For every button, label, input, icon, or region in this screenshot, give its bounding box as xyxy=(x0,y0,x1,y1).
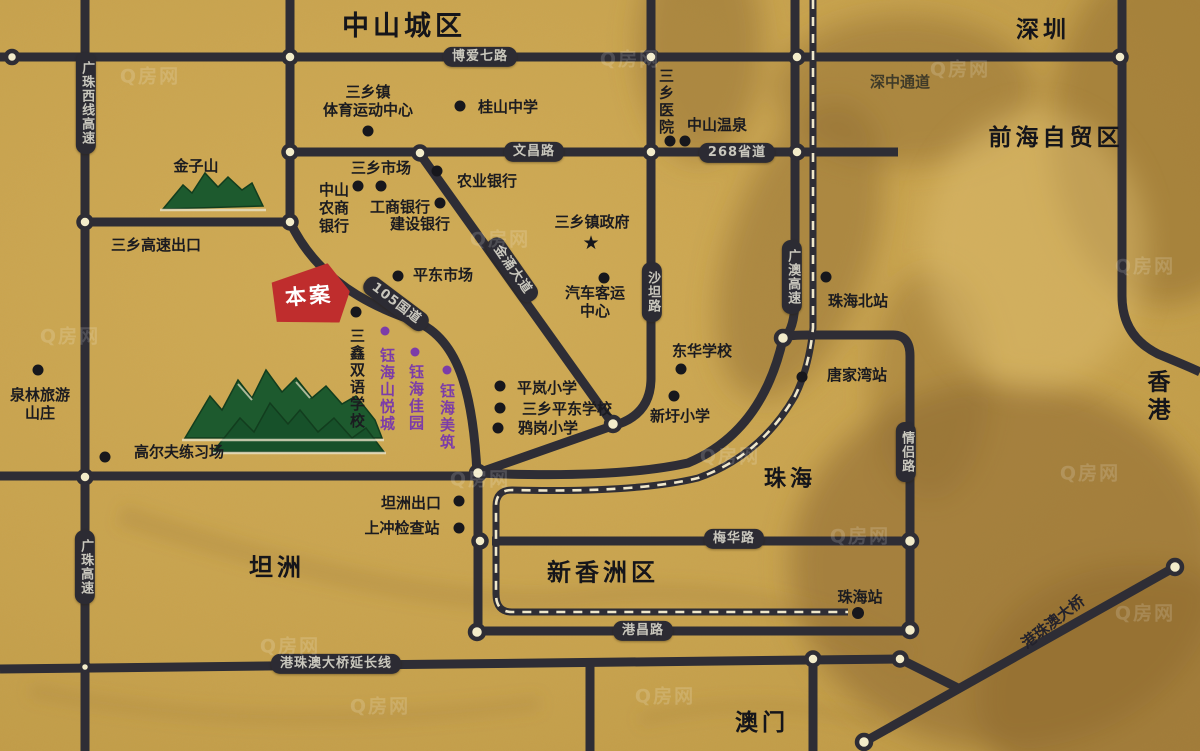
poi-xinwei-school: 新圩小学 xyxy=(650,407,710,425)
poi-rural-bank: 中山 农商 银行 xyxy=(319,181,349,235)
road-pill-hzmb-extension: 港珠澳大桥延长线 xyxy=(271,654,401,674)
poi-yagang-school: 鸦岗小学 xyxy=(518,419,578,437)
area-zhongshan-urban: 中山城区 xyxy=(342,11,466,43)
poi-zhuhai-north-station: 珠海北站 xyxy=(828,292,888,310)
road-pill-guangzhu: 广珠高速 xyxy=(75,530,95,604)
poi-abc-bank: 农业银行 xyxy=(457,172,517,190)
project-site-label: 本案 xyxy=(284,278,334,312)
estate-yuhai-meizhu: 钰海美筑 xyxy=(438,383,456,451)
poi-guishan-school: 桂山中学 xyxy=(478,98,538,116)
area-tanzhou: 坦洲 xyxy=(249,554,305,583)
area-xinxiangzhou: 新香洲区 xyxy=(547,559,659,588)
poi-pingdong-market: 平东市场 xyxy=(413,266,473,284)
poi-pinglan-school: 平岚小学 xyxy=(517,379,577,397)
government-star-icon: ★ xyxy=(582,232,599,254)
poi-tanzhou-exit: 坦洲出口 xyxy=(381,494,441,512)
road-pill-qinglv: 情侣路 xyxy=(896,422,916,482)
road-pill-gangchang: 港昌路 xyxy=(613,621,673,641)
poi-sanxiang-hospital: 三乡医院 xyxy=(657,68,675,136)
area-macau: 澳门 xyxy=(735,710,789,738)
poi-highway-exit: 三乡高速出口 xyxy=(111,236,201,254)
road-pill-shatan: 沙坦路 xyxy=(642,262,662,322)
area-qianhai: 前海自贸区 xyxy=(989,125,1124,153)
area-shenzhen: 深圳 xyxy=(1016,17,1070,45)
road-pill-sd268: 268省道 xyxy=(699,143,775,163)
poi-sanxin-school: 三鑫双语学校 xyxy=(348,328,366,430)
poi-sports-center: 三乡镇 体育运动中心 xyxy=(323,83,413,119)
area-zhuhai: 珠海 xyxy=(764,467,816,493)
road-pill-guangzhu-west: 广珠西线高速 xyxy=(76,52,96,154)
poi-shangchong-checkpoint: 上冲检查站 xyxy=(364,519,439,537)
poi-icbc-bank: 工商银行 xyxy=(370,198,430,216)
poi-bus-center: 汽车客运 中心 xyxy=(565,284,625,320)
road-label-shenzhong-corridor: 深中通道 xyxy=(870,73,930,91)
poi-donghua-school: 东华学校 xyxy=(672,342,732,360)
poi-tangjiawan-station: 唐家湾站 xyxy=(827,366,887,384)
poi-golf-range: 高尔夫练习场 xyxy=(134,443,224,461)
poi-zhuhai-station: 珠海站 xyxy=(837,588,882,606)
area-hongkong: 香港 xyxy=(1142,369,1181,424)
poi-pingdong-school: 三乡平东学校 xyxy=(522,400,612,418)
poi-quanlin-resort: 泉林旅游 山庄 xyxy=(10,386,70,422)
road-pill-wenchang: 文昌路 xyxy=(504,142,564,162)
poi-jinzishan: 金子山 xyxy=(173,157,218,175)
poi-sanxiang-market: 三乡市场 xyxy=(351,159,411,177)
road-pill-guangao: 广澳高速 xyxy=(782,240,802,314)
poi-ccb-bank: 建设银行 xyxy=(390,215,450,233)
road-pill-boai7: 博爱七路 xyxy=(443,47,517,67)
estate-yuhai-jiayuan: 钰海佳园 xyxy=(407,364,425,432)
estate-yuhai-shanyuecheng: 钰海山悦城 xyxy=(378,348,396,433)
road-pill-meihua: 梅华路 xyxy=(704,529,764,549)
location-map: 中山城区 深圳 前海自贸区 香港 澳门 珠海 新香洲区 坦洲 博爱七路 文昌路 … xyxy=(0,0,1200,751)
poi-town-government: 三乡镇政府 xyxy=(554,213,629,231)
poi-zhongshan-hotspring: 中山温泉 xyxy=(687,116,747,134)
